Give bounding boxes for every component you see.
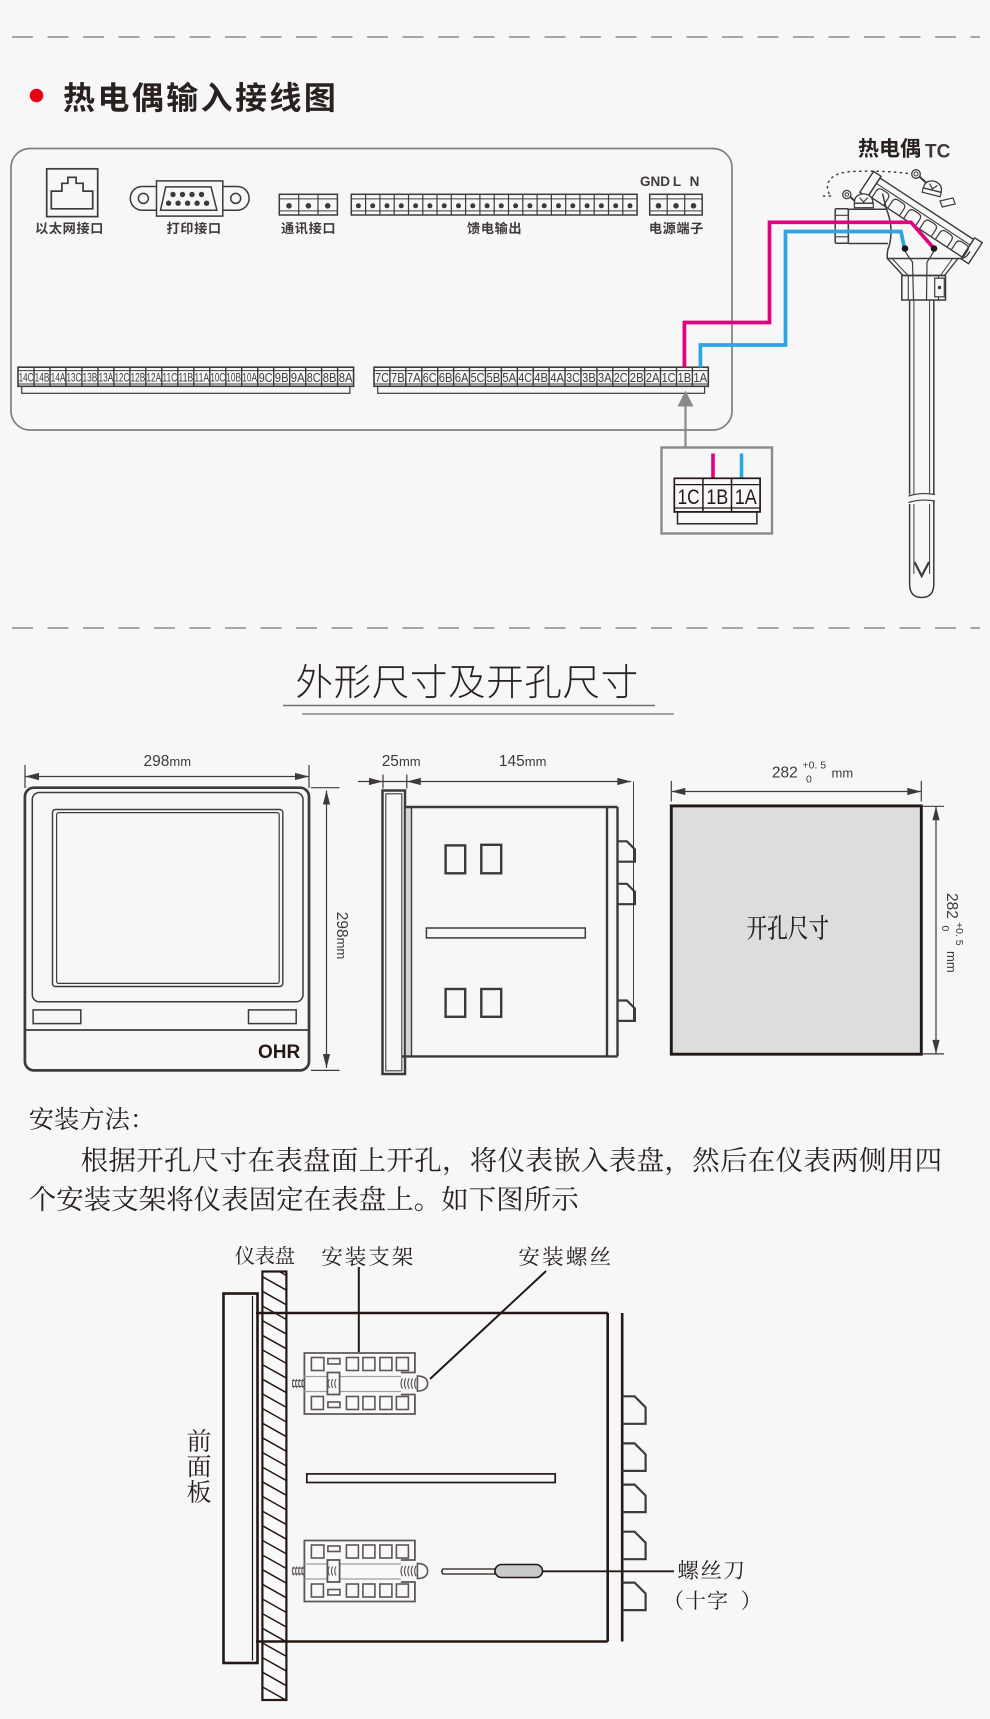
svg-text:5A: 5A bbox=[502, 370, 516, 385]
svg-text:3A: 3A bbox=[598, 370, 612, 385]
svg-text:0: 0 bbox=[806, 774, 812, 786]
svg-text:1A: 1A bbox=[735, 486, 757, 509]
svg-text:2B: 2B bbox=[630, 370, 644, 385]
svg-text:1B: 1B bbox=[706, 486, 728, 509]
svg-text:1C: 1C bbox=[662, 370, 676, 385]
svg-text:11C: 11C bbox=[162, 370, 177, 384]
svg-text:1A: 1A bbox=[693, 370, 707, 385]
svg-text:OHR: OHR bbox=[258, 1042, 301, 1063]
svg-text:4C: 4C bbox=[518, 370, 532, 385]
svg-text:7A: 7A bbox=[407, 370, 421, 385]
svg-text:mm: mm bbox=[944, 951, 959, 973]
svg-text:298mm: 298mm bbox=[333, 912, 350, 960]
svg-text:+0. 5: +0. 5 bbox=[953, 922, 965, 946]
svg-text:282: 282 bbox=[943, 893, 960, 919]
svg-text:0: 0 bbox=[939, 926, 951, 932]
svg-text:13B: 13B bbox=[83, 370, 98, 384]
svg-text:8A: 8A bbox=[339, 370, 353, 385]
svg-text:12C: 12C bbox=[115, 370, 130, 384]
svg-text:1C: 1C bbox=[678, 486, 700, 509]
svg-text:25mm: 25mm bbox=[382, 753, 421, 770]
svg-text:5B: 5B bbox=[487, 370, 501, 385]
svg-text:10A: 10A bbox=[242, 370, 257, 384]
svg-text:14A: 14A bbox=[51, 370, 66, 384]
svg-text:282: 282 bbox=[772, 765, 798, 782]
svg-text:11B: 11B bbox=[178, 370, 193, 384]
svg-text:2C: 2C bbox=[614, 370, 628, 385]
svg-text:GND: GND bbox=[640, 174, 670, 189]
svg-text:7C: 7C bbox=[375, 370, 389, 385]
svg-text:10C: 10C bbox=[210, 370, 225, 384]
svg-text:N: N bbox=[690, 174, 700, 189]
svg-text:14C: 14C bbox=[19, 370, 34, 384]
svg-text:5C: 5C bbox=[471, 370, 485, 385]
svg-text:10B: 10B bbox=[226, 370, 241, 384]
svg-text:3B: 3B bbox=[582, 370, 596, 385]
svg-text:+0. 5: +0. 5 bbox=[803, 760, 827, 772]
svg-text:11A: 11A bbox=[194, 370, 209, 384]
svg-text:13A: 13A bbox=[99, 370, 114, 384]
svg-text:6A: 6A bbox=[455, 370, 469, 385]
svg-text:8B: 8B bbox=[323, 370, 337, 385]
svg-text:7B: 7B bbox=[391, 370, 405, 385]
svg-text:6B: 6B bbox=[439, 370, 453, 385]
svg-text:9A: 9A bbox=[291, 370, 305, 385]
svg-text:mm: mm bbox=[832, 766, 854, 781]
svg-text:TC: TC bbox=[925, 142, 951, 163]
svg-text:L: L bbox=[673, 174, 681, 189]
svg-text:12B: 12B bbox=[131, 370, 146, 384]
svg-text:9B: 9B bbox=[275, 370, 289, 385]
svg-text:2A: 2A bbox=[646, 370, 660, 385]
svg-text:8C: 8C bbox=[307, 370, 321, 385]
svg-text:9C: 9C bbox=[259, 370, 273, 385]
svg-text:298mm: 298mm bbox=[144, 753, 192, 770]
svg-text:145mm: 145mm bbox=[499, 753, 547, 770]
svg-text:4B: 4B bbox=[534, 370, 548, 385]
svg-text:12A: 12A bbox=[146, 370, 161, 384]
svg-text:13C: 13C bbox=[67, 370, 82, 384]
svg-text:6C: 6C bbox=[423, 370, 437, 385]
svg-text:4A: 4A bbox=[550, 370, 564, 385]
svg-text:3C: 3C bbox=[566, 370, 580, 385]
svg-text:14B: 14B bbox=[35, 370, 50, 384]
svg-text:1B: 1B bbox=[678, 370, 692, 385]
